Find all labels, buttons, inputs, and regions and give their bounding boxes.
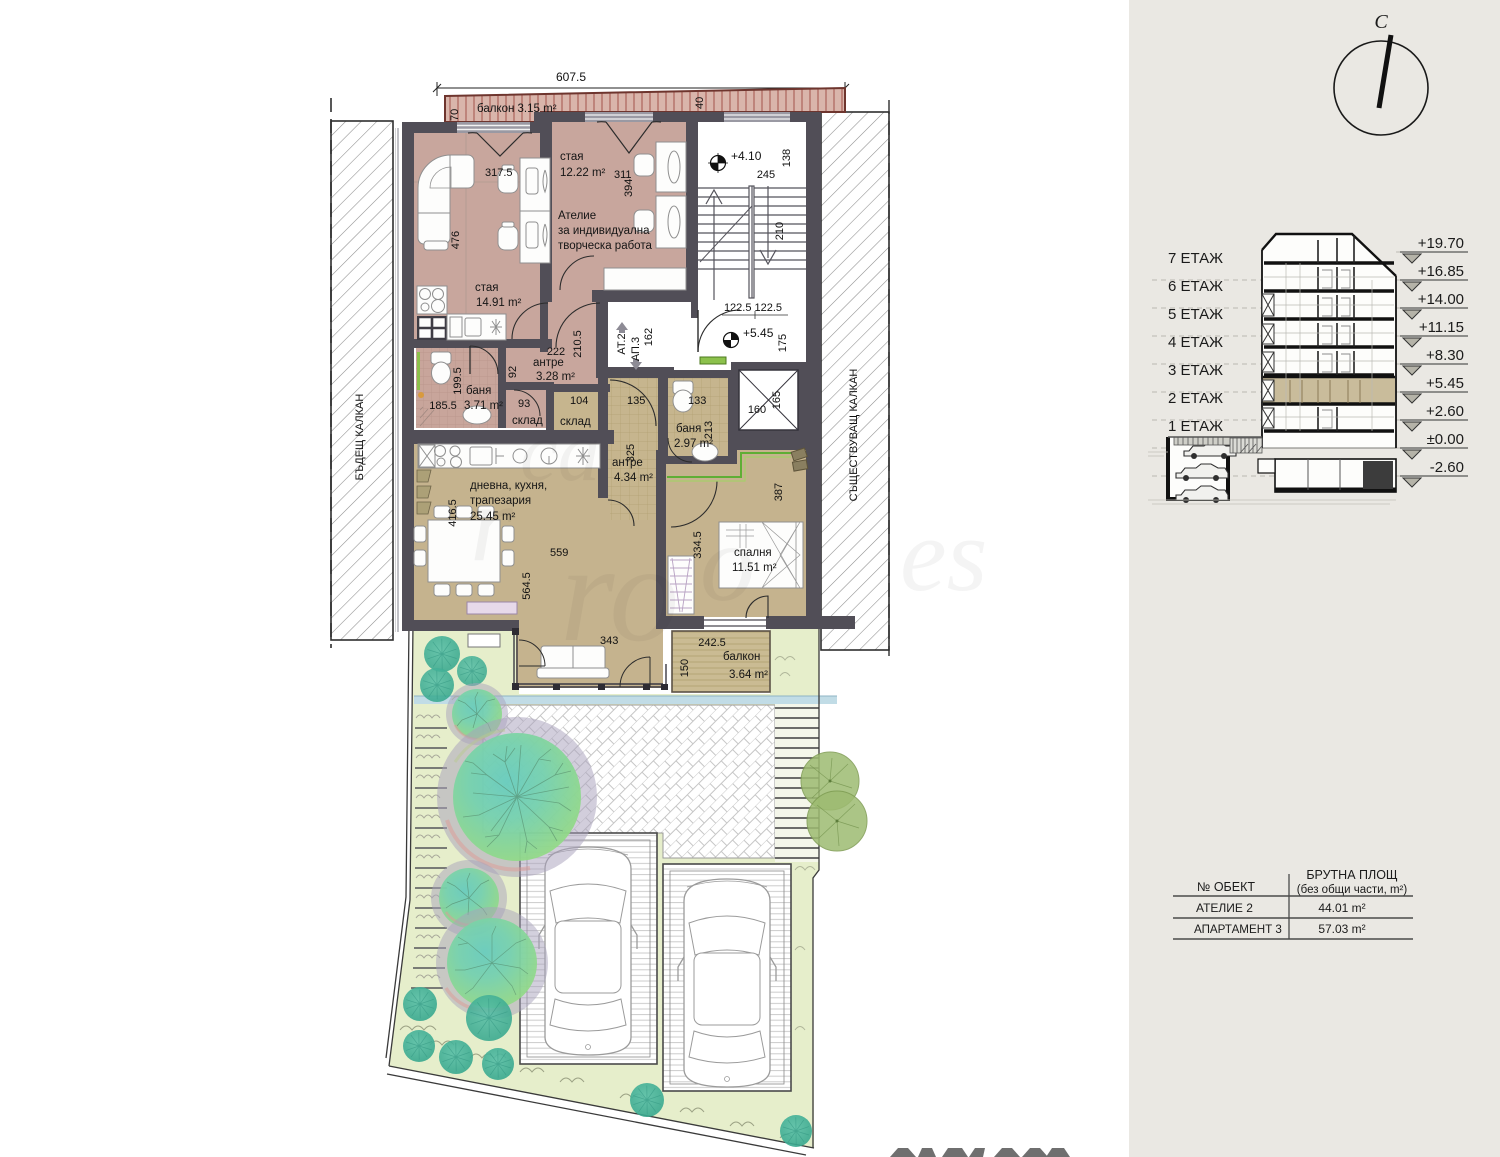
svg-text:133: 133 [688, 395, 706, 407]
svg-text:БРУТНА ПЛОЩ: БРУТНА ПЛОЩ [1306, 868, 1398, 882]
svg-text:245: 245 [757, 169, 775, 181]
svg-text:баня: баня [676, 423, 701, 435]
svg-text:394: 394 [623, 179, 635, 197]
svg-text:5 ЕТАЖ: 5 ЕТАЖ [1168, 306, 1223, 323]
svg-text:607.5: 607.5 [556, 70, 586, 84]
svg-text:+4.10: +4.10 [731, 149, 762, 163]
svg-text:325: 325 [625, 444, 637, 462]
svg-text:160: 160 [748, 404, 766, 416]
svg-text:175: 175 [777, 334, 789, 352]
svg-text:o: o [700, 502, 755, 624]
svg-text:12.22 m²: 12.22 m² [560, 167, 606, 179]
svg-text:стая: стая [560, 151, 584, 163]
svg-text:242.5: 242.5 [698, 637, 726, 649]
svg-text:185.5: 185.5 [429, 400, 457, 412]
svg-text:+2.60: +2.60 [1426, 403, 1464, 420]
svg-text:№ ОБЕКТ: № ОБЕКТ [1197, 880, 1255, 894]
svg-text:-2.60: -2.60 [1430, 459, 1464, 476]
svg-text:57.03 m²: 57.03 m² [1318, 922, 1365, 936]
svg-text:ro: ro [560, 516, 679, 671]
svg-text:творческа работа: творческа работа [558, 240, 652, 252]
svg-text:213: 213 [703, 421, 715, 439]
svg-text:4 ЕТАЖ: 4 ЕТАЖ [1168, 334, 1223, 351]
svg-text:3.28 m²: 3.28 m² [536, 371, 575, 383]
svg-text:СЪЩЕСТВУВАЩ КАЛКАН: СЪЩЕСТВУВАЩ КАЛКАН [848, 369, 860, 502]
svg-text:(без общи части, m²): (без общи части, m²) [1297, 884, 1408, 896]
svg-text:АТЕЛИЕ 2: АТЕЛИЕ 2 [1196, 901, 1253, 915]
svg-text:40: 40 [694, 97, 706, 109]
svg-text:БЪДЕЩ КАЛКАН: БЪДЕЩ КАЛКАН [354, 394, 366, 481]
svg-text:317.5: 317.5 [485, 167, 513, 179]
svg-text:14.91 m²: 14.91 m² [476, 297, 522, 309]
svg-text:210: 210 [774, 222, 786, 240]
svg-text:АТ.2: АТ.2 [616, 333, 628, 354]
svg-text:+5.45: +5.45 [743, 326, 774, 340]
svg-text:4.34 m²: 4.34 m² [614, 472, 653, 484]
svg-text:150: 150 [679, 659, 691, 677]
svg-text:387: 387 [773, 483, 785, 501]
svg-text:1 ЕТАЖ: 1 ЕТАЖ [1168, 418, 1223, 435]
svg-text:3 ЕТАЖ: 3 ЕТАЖ [1168, 362, 1223, 379]
svg-text:+19.70: +19.70 [1418, 235, 1464, 252]
svg-text:135: 135 [627, 395, 645, 407]
svg-text:6 ЕТАЖ: 6 ЕТАЖ [1168, 278, 1223, 295]
svg-text:антре: антре [533, 357, 564, 369]
svg-text:r: r [470, 462, 514, 584]
svg-text:+5.45: +5.45 [1426, 375, 1464, 392]
svg-text:7 ЕТАЖ: 7 ЕТАЖ [1168, 250, 1223, 267]
svg-text:Ателие: Ателие [558, 210, 596, 222]
svg-text:АПАРТАМЕНТ 3: АПАРТАМЕНТ 3 [1194, 923, 1282, 936]
svg-text:стая: стая [475, 282, 499, 294]
svg-text:165: 165 [771, 391, 783, 409]
svg-text:162: 162 [643, 328, 655, 346]
svg-text:ca: ca [520, 405, 600, 499]
svg-text:44.01 m²: 44.01 m² [1318, 901, 1365, 915]
svg-text:баня: баня [466, 385, 491, 397]
svg-text:C: C [1374, 11, 1388, 33]
svg-text:3.64 m²: 3.64 m² [729, 669, 768, 681]
svg-text:476: 476 [450, 231, 462, 249]
svg-text:+11.15: +11.15 [1419, 319, 1464, 336]
svg-text:АП.3: АП.3 [630, 337, 642, 361]
svg-text:92: 92 [507, 366, 519, 378]
svg-text:2 ЕТАЖ: 2 ЕТАЖ [1168, 390, 1223, 407]
svg-text:138: 138 [781, 149, 793, 167]
svg-text:210.5: 210.5 [572, 330, 584, 358]
svg-text:70: 70 [449, 109, 461, 121]
svg-text:+16.85: +16.85 [1418, 263, 1464, 280]
svg-text:балкон: балкон [723, 651, 760, 663]
svg-text:564.5: 564.5 [521, 572, 533, 600]
svg-text:+8.30: +8.30 [1426, 347, 1464, 364]
svg-text:±0.00: ±0.00 [1427, 431, 1464, 448]
svg-text:es: es [900, 496, 987, 613]
svg-text:3.71 m²: 3.71 m² [464, 400, 503, 412]
svg-text:+14.00: +14.00 [1418, 291, 1464, 308]
svg-text:за индивидуална: за индивидуална [558, 225, 650, 237]
svg-text:416.5: 416.5 [447, 499, 459, 527]
svg-text:122.5 122.5: 122.5 122.5 [724, 302, 782, 314]
svg-text:199.5: 199.5 [452, 367, 464, 395]
